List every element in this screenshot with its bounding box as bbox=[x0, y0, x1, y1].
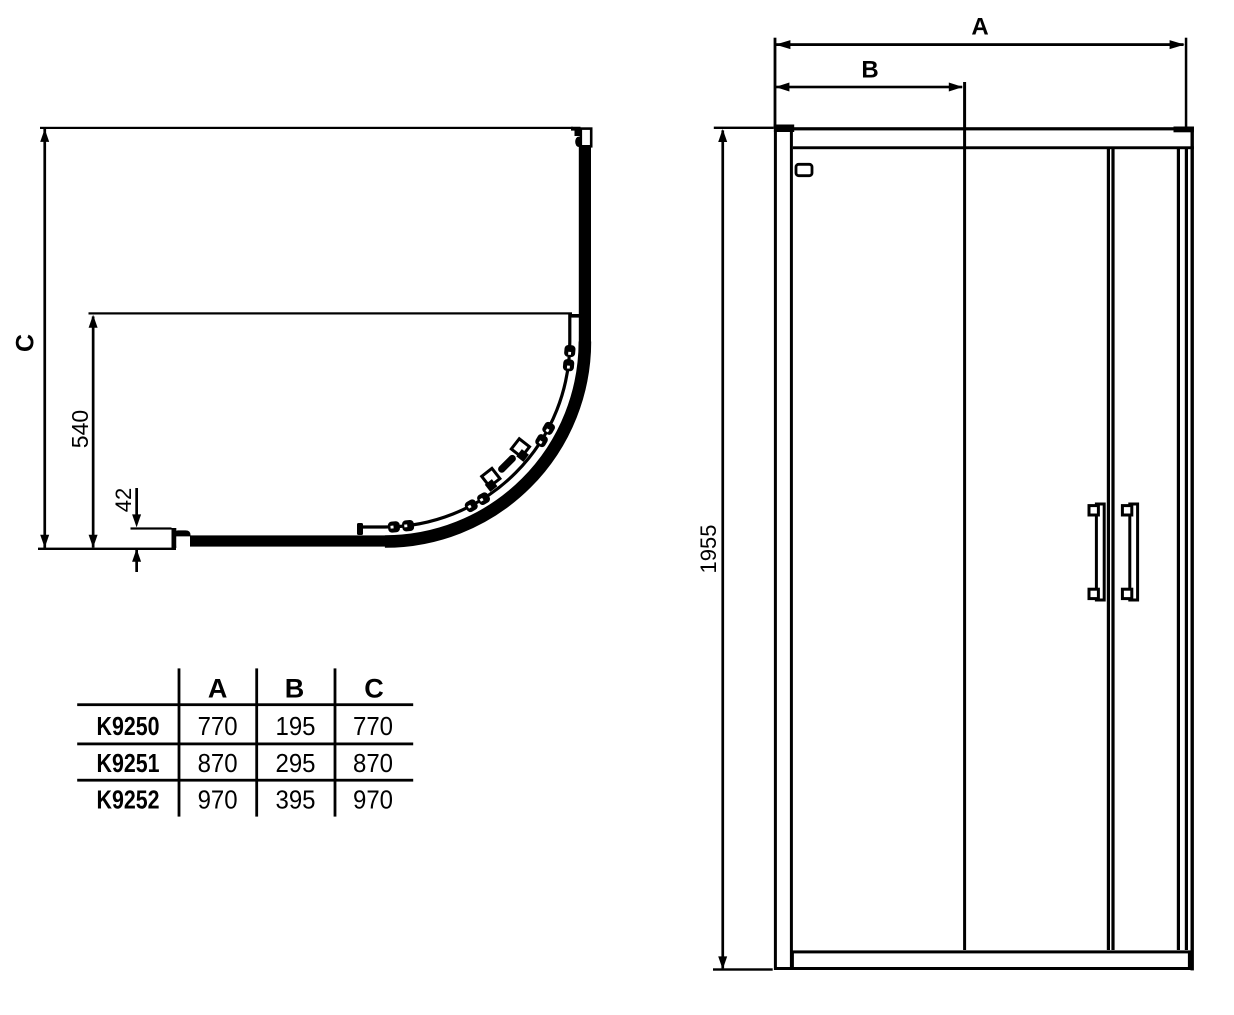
svg-text:395: 395 bbox=[276, 784, 316, 814]
svg-text:A: A bbox=[971, 14, 988, 41]
svg-text:K9252: K9252 bbox=[97, 784, 160, 814]
svg-text:540: 540 bbox=[67, 410, 93, 448]
svg-text:A: A bbox=[208, 674, 228, 704]
svg-text:870: 870 bbox=[198, 748, 238, 778]
svg-text:295: 295 bbox=[276, 748, 316, 778]
svg-text:B: B bbox=[285, 674, 305, 704]
svg-text:C: C bbox=[364, 674, 384, 704]
svg-text:C: C bbox=[12, 334, 40, 352]
svg-text:195: 195 bbox=[276, 711, 316, 741]
svg-text:42: 42 bbox=[111, 488, 136, 512]
svg-text:770: 770 bbox=[198, 711, 238, 741]
svg-text:1955: 1955 bbox=[696, 525, 721, 574]
svg-text:K9250: K9250 bbox=[97, 711, 160, 741]
svg-text:770: 770 bbox=[353, 711, 393, 741]
svg-text:K9251: K9251 bbox=[97, 748, 160, 778]
svg-text:970: 970 bbox=[353, 784, 393, 814]
svg-text:970: 970 bbox=[198, 784, 238, 814]
svg-text:B: B bbox=[861, 57, 878, 84]
svg-text:870: 870 bbox=[353, 748, 393, 778]
